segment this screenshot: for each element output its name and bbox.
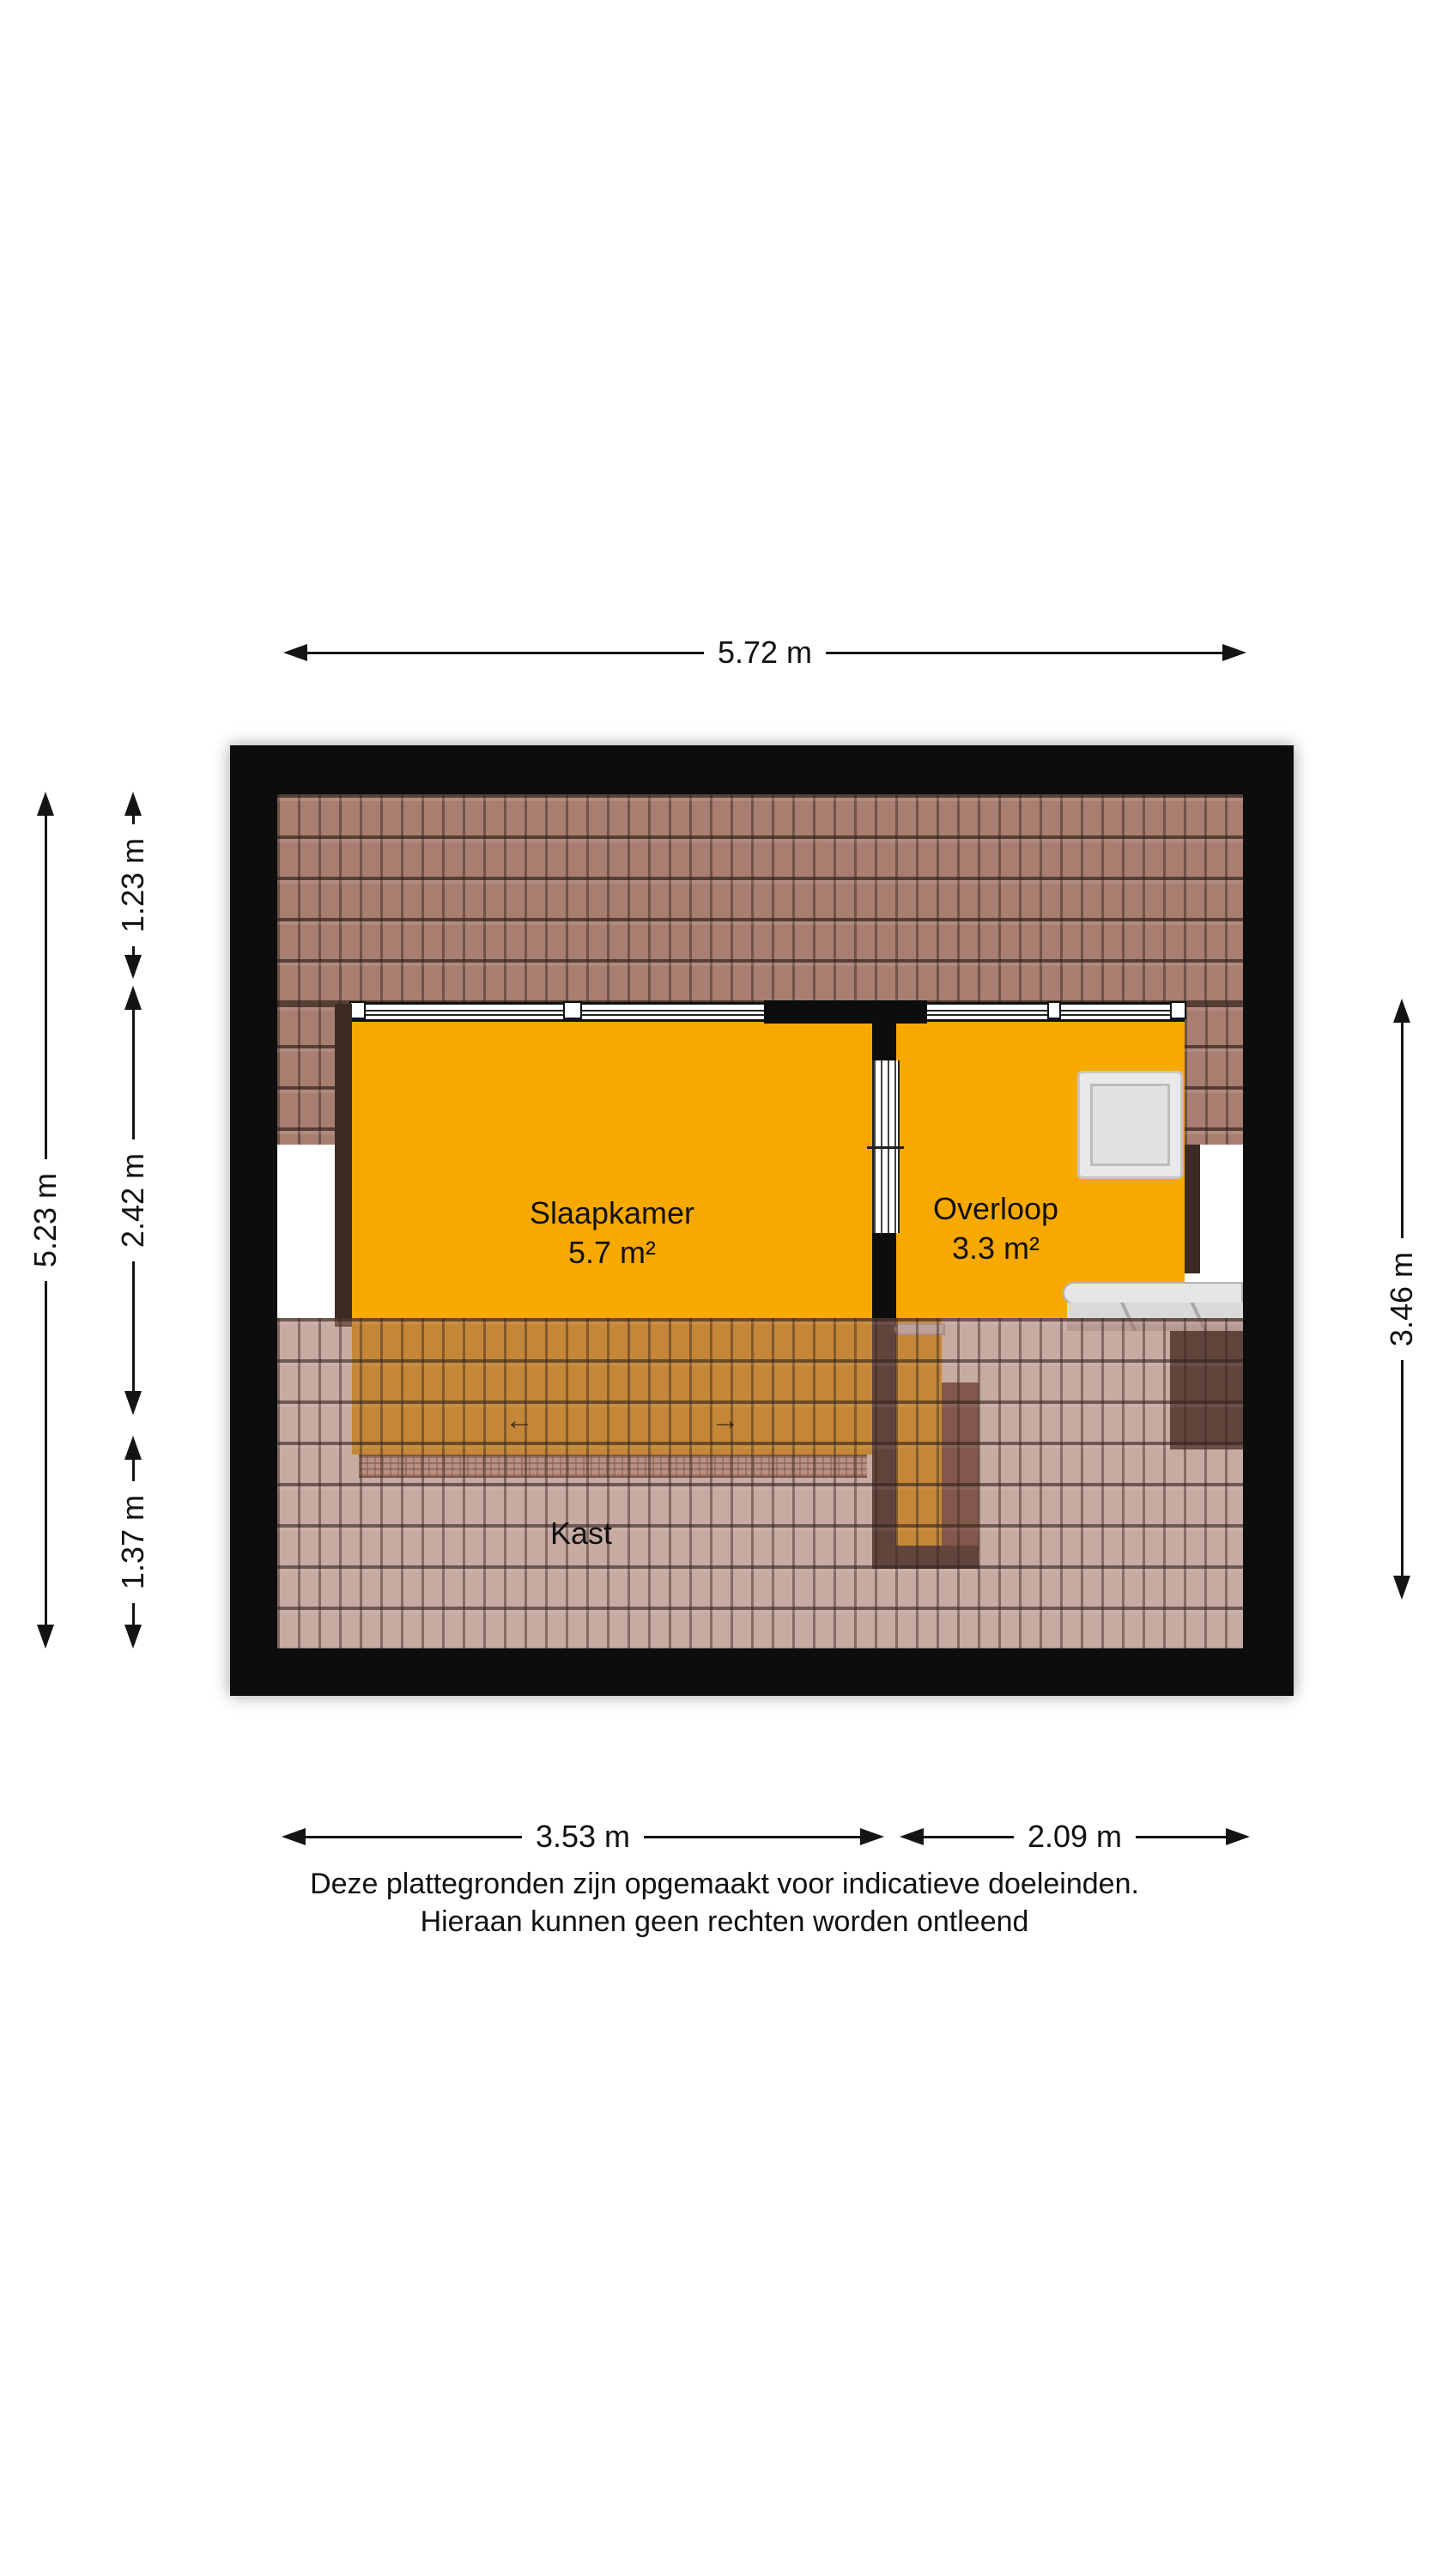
arrow-down-icon <box>37 1625 54 1649</box>
dimension-line <box>1401 1360 1404 1576</box>
dimension-line <box>45 816 47 1159</box>
left-dormer <box>277 1145 335 1327</box>
roof-upper <box>277 794 1243 1004</box>
room-area: 5.7 m² <box>483 1233 741 1273</box>
dimension-left-seg3: 1.37 m <box>116 1436 150 1649</box>
arrow-up-icon <box>124 1436 142 1460</box>
dimension-line <box>307 652 704 654</box>
dimension-line <box>826 652 1222 654</box>
arrow-down-icon <box>1393 1576 1410 1600</box>
arrow-left-icon <box>282 1828 306 1845</box>
dimension-line <box>132 1261 135 1391</box>
arrow-left-icon <box>283 644 307 661</box>
room-label-kast: Kast <box>495 1516 667 1552</box>
dimension-line <box>132 1603 135 1625</box>
dimension-left-seg2-label: 2.42 m <box>115 1139 151 1261</box>
dimension-bottom-right: 2.09 m <box>900 1820 1250 1854</box>
room-name: Slaapkamer <box>483 1194 741 1233</box>
arrow-down-icon <box>124 1625 142 1649</box>
washing-machine <box>1077 1071 1183 1179</box>
washing-machine-door <box>1090 1084 1170 1166</box>
slide-arrow-left-icon: ← <box>481 1406 558 1435</box>
dimension-line <box>1136 1836 1226 1838</box>
dimension-left-seg2: 2.42 m <box>116 986 150 1415</box>
dimension-left-seg3-label: 1.37 m <box>115 1481 151 1603</box>
dimension-left-total: 5.23 m <box>28 792 63 1649</box>
top-wall-segment <box>764 1000 927 1024</box>
dimension-left-seg1: 1.23 m <box>116 792 150 979</box>
arrow-down-icon <box>124 955 142 979</box>
dimension-line <box>924 1836 1014 1838</box>
dimension-top-label: 5.72 m <box>704 635 826 671</box>
arrow-right-icon <box>1222 644 1246 661</box>
floorplan-page: 5.72 m 5.23 m 1.23 m 2.42 m 1.37 m 3.4 <box>0 0 1449 2576</box>
roof-left-strip <box>277 1004 335 1145</box>
disclaimer-line1: Deze plattegronden zijn opgemaakt voor i… <box>124 1865 1325 1903</box>
room-area: 3.3 m² <box>867 1229 1125 1268</box>
dimension-line <box>132 946 135 955</box>
right-knee-wall <box>1185 1145 1200 1273</box>
floor-plan: ← → Slaapkamer 5.7 m² Overloop 3.3 m² Ka… <box>230 745 1294 1696</box>
window-mullion <box>563 1001 582 1019</box>
arrow-right-icon <box>1226 1828 1250 1845</box>
dimension-line <box>132 1460 135 1481</box>
arrow-right-icon <box>860 1828 884 1845</box>
dimension-line <box>132 1010 135 1139</box>
interior-window-tick <box>867 1146 904 1149</box>
left-knee-wall <box>335 1004 352 1327</box>
dimension-line <box>306 1836 522 1838</box>
arrow-left-icon <box>900 1828 924 1845</box>
dimension-top: 5.72 m <box>283 635 1246 670</box>
arrow-up-icon <box>1393 999 1410 1023</box>
right-dormer <box>1200 1145 1243 1299</box>
room-label-slaapkamer: Slaapkamer 5.7 m² <box>483 1194 741 1273</box>
roof-lower-overlay <box>277 1318 1243 1649</box>
dimension-line <box>644 1836 860 1838</box>
arrow-up-icon <box>124 986 142 1010</box>
dimension-left-total-label: 5.23 m <box>27 1159 64 1281</box>
dimension-left-seg1-label: 1.23 m <box>115 824 151 946</box>
disclaimer: Deze plattegronden zijn opgemaakt voor i… <box>124 1865 1325 1941</box>
floor-plan-interior: ← → Slaapkamer 5.7 m² Overloop 3.3 m² Ka… <box>277 794 1243 1649</box>
window-mullion <box>1047 1001 1061 1019</box>
arrow-down-icon <box>124 1391 142 1415</box>
window-endcap-right <box>1170 1001 1186 1019</box>
dimension-bottom-right-label: 2.09 m <box>1014 1819 1136 1855</box>
dimension-bottom-left-label: 3.53 m <box>522 1819 644 1855</box>
stairs-landing <box>1063 1282 1243 1304</box>
disclaimer-line2: Hieraan kunnen geen rechten worden ontle… <box>124 1903 1325 1941</box>
dimension-bottom-left: 3.53 m <box>282 1820 884 1854</box>
dimension-line <box>45 1281 47 1625</box>
room-name: Overloop <box>867 1189 1125 1229</box>
slide-arrow-right-icon: → <box>687 1406 764 1435</box>
dimension-line <box>1401 1023 1404 1238</box>
roof-right-strip <box>1185 1004 1243 1145</box>
arrow-up-icon <box>37 792 54 816</box>
arrow-up-icon <box>124 792 142 816</box>
room-label-overloop: Overloop 3.3 m² <box>867 1189 1125 1268</box>
dimension-right-label: 3.46 m <box>1384 1238 1420 1360</box>
dimension-right: 3.46 m <box>1385 999 1419 1600</box>
dimension-line <box>132 816 135 824</box>
